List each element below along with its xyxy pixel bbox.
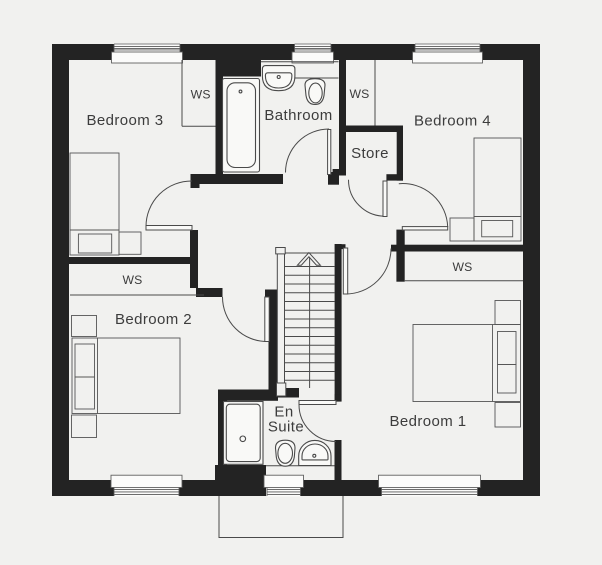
svg-text:WS: WS bbox=[349, 87, 369, 101]
svg-text:WS: WS bbox=[452, 260, 472, 274]
svg-text:Bedroom 4: Bedroom 4 bbox=[414, 113, 491, 130]
svg-text:Suite: Suite bbox=[268, 418, 304, 435]
svg-text:WS: WS bbox=[191, 88, 211, 102]
svg-text:Bedroom 3: Bedroom 3 bbox=[87, 112, 164, 129]
svg-text:Bedroom 2: Bedroom 2 bbox=[115, 311, 192, 328]
svg-text:Bedroom 1: Bedroom 1 bbox=[390, 413, 467, 430]
svg-text:Store: Store bbox=[351, 145, 389, 162]
svg-text:WS: WS bbox=[122, 273, 142, 287]
svg-text:Bathroom: Bathroom bbox=[264, 107, 332, 124]
